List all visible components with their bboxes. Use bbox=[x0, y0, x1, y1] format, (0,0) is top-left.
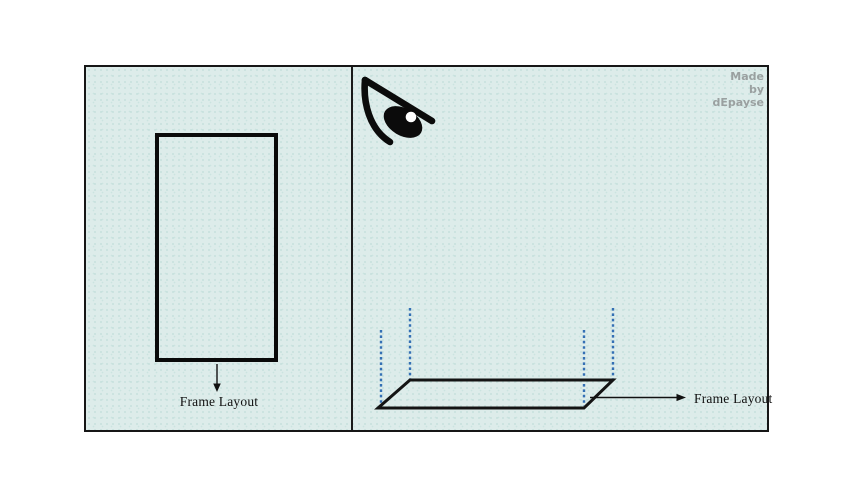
frame-layout-plane bbox=[378, 380, 613, 408]
down-arrow-head bbox=[213, 384, 221, 393]
right-arrow-head bbox=[677, 394, 687, 401]
down-arrow-icon bbox=[209, 364, 225, 393]
watermark-line-3: dEpayse bbox=[712, 96, 764, 109]
panel-divider bbox=[351, 67, 353, 430]
right-frame-layout-label: Frame Layout bbox=[694, 391, 773, 407]
frame-layout-rectangle bbox=[155, 133, 278, 362]
watermark-line-1: Made bbox=[712, 70, 764, 83]
diagram-frame: Frame Layout Made by dEpayse Frame Layou… bbox=[84, 65, 769, 432]
eye-icon bbox=[361, 76, 437, 146]
perspective-plane-diagram bbox=[372, 299, 694, 417]
watermark-credit: Made by dEpayse bbox=[712, 70, 764, 109]
watermark-line-2: by bbox=[712, 83, 764, 96]
left-frame-layout-label: Frame Layout bbox=[169, 394, 269, 410]
eye-highlight bbox=[406, 112, 417, 123]
